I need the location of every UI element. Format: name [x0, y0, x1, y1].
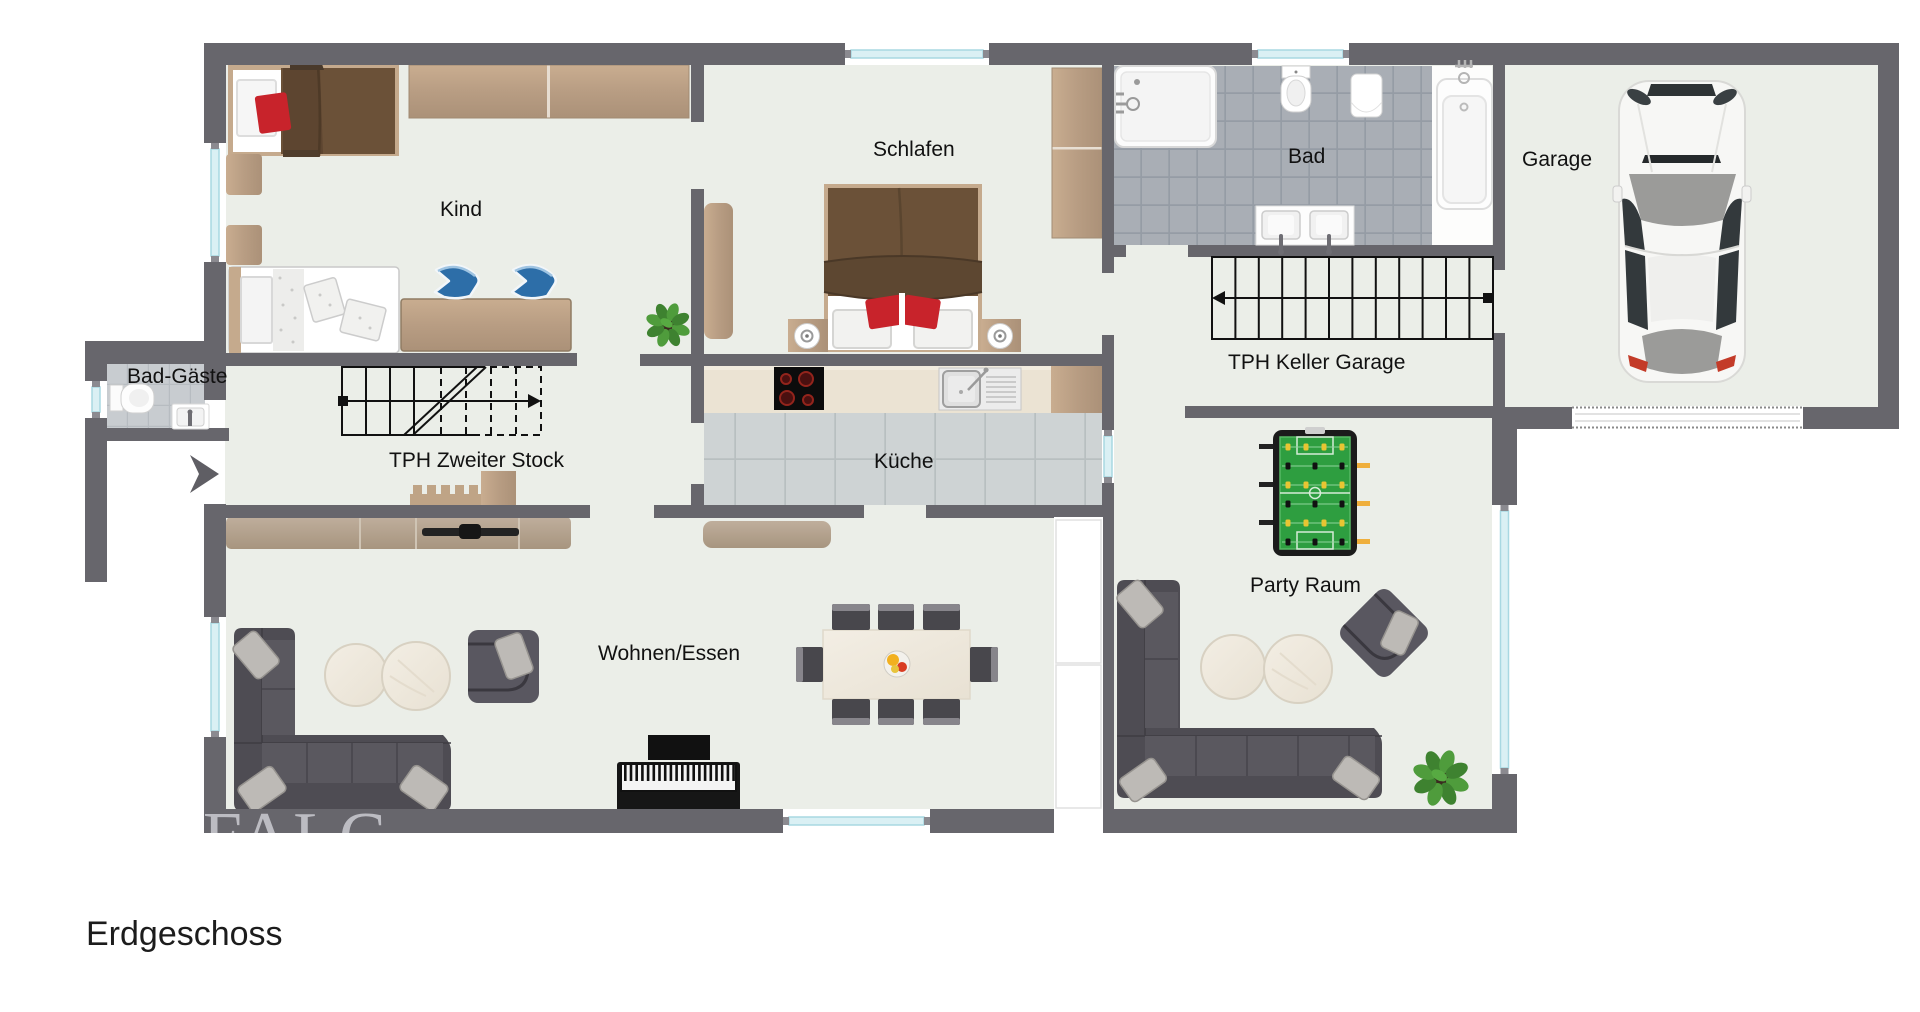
svg-text:Bad-Gäste: Bad-Gäste — [127, 365, 227, 388]
svg-text:Küche: Küche — [874, 450, 934, 473]
svg-text:Party Raum: Party Raum — [1250, 574, 1361, 597]
svg-text:Kind: Kind — [440, 198, 482, 221]
svg-text:Schlafen: Schlafen — [873, 138, 955, 161]
svg-text:TPH Zweiter Stock: TPH Zweiter Stock — [389, 449, 565, 472]
svg-text:Wohnen/Essen: Wohnen/Essen — [598, 642, 740, 665]
svg-text:TPH Keller Garage: TPH Keller Garage — [1228, 351, 1405, 374]
svg-text:FALC: FALC — [203, 799, 389, 876]
svg-text:Bad: Bad — [1288, 145, 1325, 168]
svg-text:Erdgeschoss: Erdgeschoss — [86, 915, 283, 953]
svg-text:Garage: Garage — [1522, 148, 1592, 171]
